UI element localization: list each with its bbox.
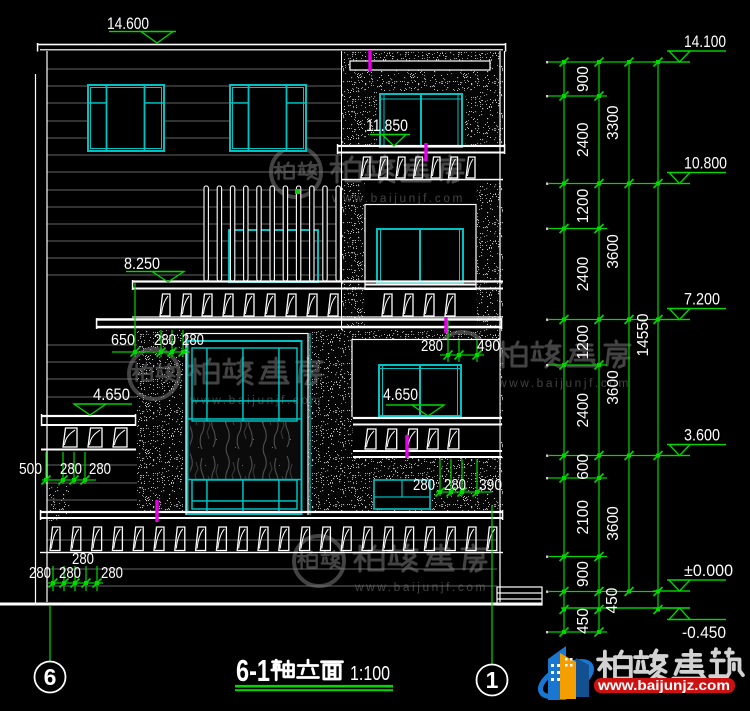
svg-text:280: 280 xyxy=(182,332,204,349)
svg-text:280: 280 xyxy=(59,565,81,582)
svg-text:900: 900 xyxy=(575,561,592,587)
svg-text:11.850: 11.850 xyxy=(366,116,408,135)
svg-text:650: 650 xyxy=(111,332,135,349)
svg-text:280: 280 xyxy=(89,461,111,478)
svg-text:280: 280 xyxy=(413,477,435,494)
svg-text:4.650: 4.650 xyxy=(383,385,418,404)
svg-text:-0.450: -0.450 xyxy=(682,623,726,642)
svg-text:390: 390 xyxy=(479,477,502,494)
svg-text:280: 280 xyxy=(154,332,176,349)
svg-text:3600: 3600 xyxy=(605,234,622,269)
svg-text:6: 6 xyxy=(44,664,57,690)
svg-text:3.600: 3.600 xyxy=(684,426,720,445)
svg-text:1200: 1200 xyxy=(575,188,592,223)
svg-text:490: 490 xyxy=(477,338,500,355)
svg-text:450: 450 xyxy=(604,587,621,613)
svg-text:500: 500 xyxy=(19,461,42,478)
svg-text:4.650: 4.650 xyxy=(93,385,130,404)
svg-text:1200: 1200 xyxy=(575,325,592,360)
svg-text:280: 280 xyxy=(101,565,123,582)
svg-text:2100: 2100 xyxy=(575,500,592,535)
svg-text:600: 600 xyxy=(575,453,592,479)
svg-text:6-1: 6-1 xyxy=(236,653,270,688)
svg-text:280: 280 xyxy=(29,565,51,582)
svg-text:www.baijunjf.com: www.baijunjf.com xyxy=(331,193,465,205)
svg-text:3300: 3300 xyxy=(605,105,622,140)
svg-text:www.baijunjz.com: www.baijunjz.com xyxy=(597,678,730,693)
svg-text:280: 280 xyxy=(421,338,443,355)
svg-text:14550: 14550 xyxy=(635,313,652,356)
svg-text:3600: 3600 xyxy=(605,370,622,405)
svg-text:1: 1 xyxy=(486,667,499,693)
svg-text:900: 900 xyxy=(575,66,592,92)
svg-text:450: 450 xyxy=(575,608,592,634)
svg-text:10.800: 10.800 xyxy=(684,154,727,173)
svg-text:2400: 2400 xyxy=(575,256,592,291)
svg-text:2400: 2400 xyxy=(575,393,592,428)
svg-text:14.600: 14.600 xyxy=(107,14,149,33)
svg-text:8.250: 8.250 xyxy=(124,254,160,273)
svg-text:280: 280 xyxy=(444,477,466,494)
svg-text:2400: 2400 xyxy=(575,122,592,157)
svg-text:1:100: 1:100 xyxy=(350,663,390,685)
svg-text:3600: 3600 xyxy=(605,506,622,541)
svg-text:7.200: 7.200 xyxy=(684,290,720,309)
svg-text:±0.000: ±0.000 xyxy=(684,561,733,580)
svg-text:280: 280 xyxy=(60,461,82,478)
svg-text:www.baijunjf.com: www.baijunjf.com xyxy=(354,582,488,594)
svg-text:14.100: 14.100 xyxy=(684,32,726,51)
